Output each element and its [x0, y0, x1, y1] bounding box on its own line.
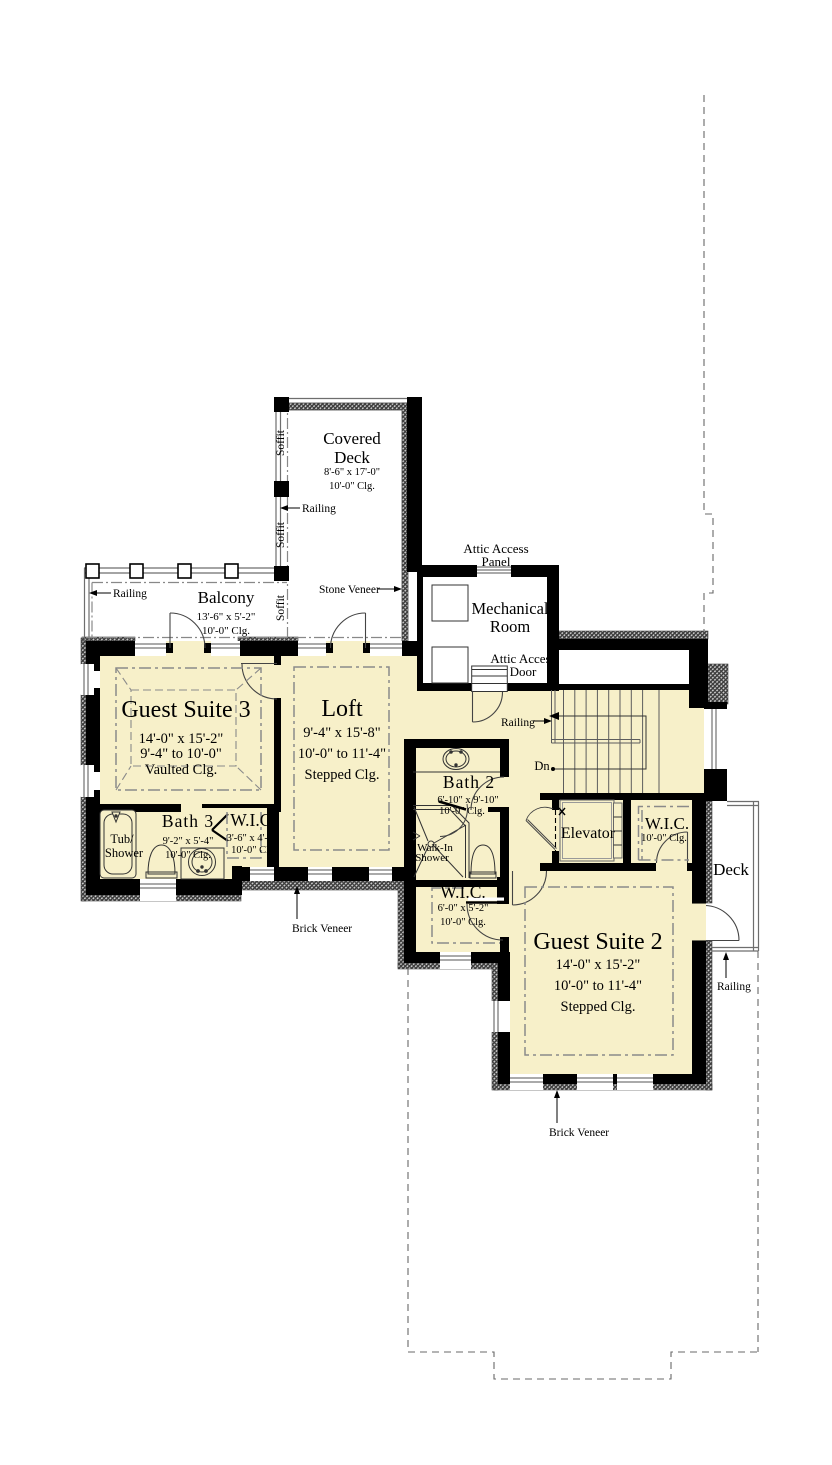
svg-text:Bath 2: Bath 2 — [443, 772, 495, 792]
svg-text:9'-2" x 5'-4": 9'-2" x 5'-4" — [163, 836, 214, 847]
svg-text:10'-0" Clg.: 10'-0" Clg. — [439, 806, 485, 817]
svg-text:Railing: Railing — [113, 588, 147, 600]
svg-text:Stone Veneer: Stone Veneer — [319, 584, 380, 596]
svg-text:Shower: Shower — [105, 846, 144, 860]
svg-text:10'-0" Clg.: 10'-0" Clg. — [641, 833, 687, 844]
svg-text:6'-10" x 9'-10": 6'-10" x 9'-10" — [437, 795, 498, 806]
svg-text:Railing: Railing — [302, 503, 336, 515]
svg-text:9'-4" x 15'-8": 9'-4" x 15'-8" — [303, 725, 381, 741]
svg-text:10'-0" Clg.: 10'-0" Clg. — [202, 625, 250, 637]
svg-text:10'-0" Clg.: 10'-0" Clg. — [329, 481, 375, 492]
svg-text:Balcony: Balcony — [198, 588, 255, 607]
svg-text:10'-0" to 11'-4": 10'-0" to 11'-4" — [554, 978, 642, 994]
svg-text:W.I.C.: W.I.C. — [440, 882, 486, 902]
svg-text:Covered: Covered — [323, 429, 381, 448]
svg-text:Vaulted Clg.: Vaulted Clg. — [145, 762, 218, 778]
svg-text:10'-0" to 11'-4": 10'-0" to 11'-4" — [298, 746, 386, 762]
svg-text:Railing: Railing — [501, 717, 535, 729]
svg-text:Tub/: Tub/ — [110, 832, 134, 846]
svg-text:Panel: Panel — [482, 554, 511, 569]
svg-text:Soffit: Soffit — [275, 429, 287, 456]
svg-text:Loft: Loft — [321, 696, 363, 722]
svg-text:Brick Veneer: Brick Veneer — [549, 1127, 609, 1139]
svg-text:Brick Veneer: Brick Veneer — [292, 923, 352, 935]
svg-text:10'-0" Clg.: 10'-0" Clg. — [165, 850, 211, 861]
svg-text:W.I.C.: W.I.C. — [645, 814, 689, 833]
svg-text:9'-4" to 10'-0": 9'-4" to 10'-0" — [140, 746, 222, 762]
svg-text:Soffit: Soffit — [275, 594, 287, 621]
svg-text:8'-6" x 17'-0": 8'-6" x 17'-0" — [324, 467, 380, 478]
svg-text:10'-0" Clg.: 10'-0" Clg. — [440, 917, 486, 928]
svg-text:Deck: Deck — [713, 860, 749, 879]
svg-text:W.I.C.: W.I.C. — [230, 810, 276, 830]
svg-text:Soffit: Soffit — [275, 521, 287, 548]
svg-text:Guest Suite 2: Guest Suite 2 — [533, 929, 662, 955]
svg-text:Door: Door — [510, 664, 537, 679]
svg-text:Elevator: Elevator — [561, 825, 616, 842]
svg-text:6'-0" x 5'-2": 6'-0" x 5'-2" — [438, 903, 489, 914]
svg-text:Bath 3: Bath 3 — [162, 811, 214, 831]
svg-text:14'-0" x 15'-2": 14'-0" x 15'-2" — [556, 957, 641, 973]
svg-text:10'-0" Clg.: 10'-0" Clg. — [231, 845, 277, 856]
svg-text:Room: Room — [490, 617, 531, 636]
svg-text:Shower: Shower — [415, 852, 449, 864]
svg-text:Stepped Clg.: Stepped Clg. — [305, 767, 380, 783]
svg-text:13'-6" x 5'-2": 13'-6" x 5'-2" — [197, 611, 256, 623]
svg-text:Mechanical: Mechanical — [472, 599, 549, 618]
svg-text:Stepped Clg.: Stepped Clg. — [561, 999, 636, 1015]
svg-text:Guest Suite 3: Guest Suite 3 — [121, 697, 250, 723]
svg-text:Railing: Railing — [717, 981, 751, 993]
svg-text:3'-6" x 4'-4": 3'-6" x 4'-4" — [227, 833, 278, 844]
svg-text:Deck: Deck — [334, 448, 370, 467]
svg-text:Dn: Dn — [534, 759, 550, 773]
svg-text:14'-0" x 15'-2": 14'-0" x 15'-2" — [139, 731, 224, 747]
